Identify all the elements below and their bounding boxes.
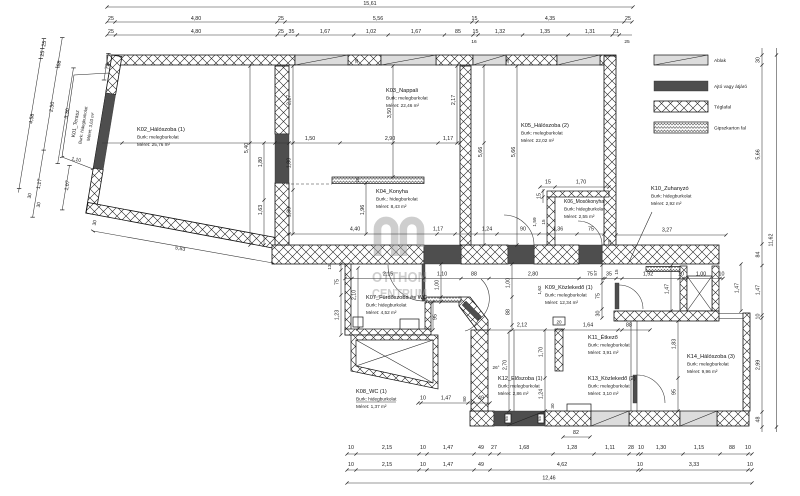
svg-text:25: 25 xyxy=(39,50,46,57)
svg-text:5,40: 5,40 xyxy=(244,143,250,153)
svg-text:1,50: 1,50 xyxy=(305,136,315,142)
svg-text:Burk: hidegburkolat: Burk: hidegburkolat xyxy=(651,194,692,199)
svg-text:Burk: hidegburkolat: Burk: hidegburkolat xyxy=(366,303,407,308)
svg-text:OTTHON: OTTHON xyxy=(372,270,427,286)
svg-text:K06_Mosókonyha: K06_Mosókonyha xyxy=(564,199,604,205)
svg-text:65: 65 xyxy=(537,416,542,421)
svg-text:1,59: 1,59 xyxy=(532,217,538,227)
svg-text:4,40: 4,40 xyxy=(350,227,360,233)
svg-text:75: 75 xyxy=(588,227,594,233)
svg-text:1,31: 1,31 xyxy=(585,29,595,35)
svg-text:1,47: 1,47 xyxy=(665,284,671,294)
svg-text:30: 30 xyxy=(550,403,555,409)
svg-text:21: 21 xyxy=(613,29,619,35)
svg-text:K08_WC (1): K08_WC (1) xyxy=(356,389,387,395)
svg-text:1,89: 1,89 xyxy=(287,207,293,217)
svg-text:K09_Közlekedő (1): K09_Közlekedő (1) xyxy=(545,285,593,291)
svg-text:1,00: 1,00 xyxy=(506,278,512,288)
svg-text:Méret: 9,96 m²: Méret: 9,96 m² xyxy=(687,369,718,374)
svg-text:25: 25 xyxy=(624,39,630,45)
svg-text:49: 49 xyxy=(478,396,484,402)
svg-text:35: 35 xyxy=(606,272,612,278)
svg-text:10: 10 xyxy=(348,462,354,468)
svg-text:4,35: 4,35 xyxy=(545,16,555,22)
svg-text:1,80: 1,80 xyxy=(287,158,293,168)
svg-text:25: 25 xyxy=(108,29,114,35)
svg-text:Méret: 2,86 m²: Méret: 2,86 m² xyxy=(498,391,529,396)
svg-text:1,80: 1,80 xyxy=(258,157,264,167)
svg-text:1,00: 1,00 xyxy=(696,272,706,278)
svg-text:2,15: 2,15 xyxy=(382,462,392,468)
svg-text:84: 84 xyxy=(756,252,762,258)
svg-text:1,47: 1,47 xyxy=(441,396,451,402)
svg-text:Burk: melegburkolat: Burk: melegburkolat xyxy=(545,293,587,298)
svg-text:15: 15 xyxy=(537,193,543,199)
svg-text:1,24: 1,24 xyxy=(482,227,492,233)
svg-text:K14_Hálószoba (3): K14_Hálószoba (3) xyxy=(687,354,735,360)
svg-text:2,15: 2,15 xyxy=(383,272,393,278)
svg-text:1,92: 1,92 xyxy=(643,272,653,278)
svg-text:75: 75 xyxy=(335,279,341,285)
svg-text:30: 30 xyxy=(756,57,762,63)
svg-text:1,02: 1,02 xyxy=(366,29,376,35)
svg-text:27: 27 xyxy=(491,445,497,451)
svg-text:K10_Zuhanyzó: K10_Zuhanyzó xyxy=(651,186,689,192)
svg-text:88: 88 xyxy=(56,60,63,67)
svg-text:Gipszkarton fal: Gipszkarton fal xyxy=(714,126,746,132)
svg-text:15: 15 xyxy=(541,219,546,225)
svg-text:20: 20 xyxy=(607,239,612,244)
svg-text:10: 10 xyxy=(348,445,354,451)
svg-text:65: 65 xyxy=(504,416,509,421)
svg-text:35: 35 xyxy=(289,29,295,35)
svg-text:88: 88 xyxy=(471,272,477,278)
svg-text:Méret: 22,02 m²: Méret: 22,02 m² xyxy=(521,138,555,143)
svg-text:25: 25 xyxy=(278,16,284,22)
svg-text:1,67: 1,67 xyxy=(320,29,330,35)
svg-text:15: 15 xyxy=(545,180,551,186)
svg-text:26°: 26° xyxy=(493,365,500,370)
svg-text:25: 25 xyxy=(278,29,284,35)
svg-text:Burk: melegburkolat: Burk: melegburkolat xyxy=(687,362,729,367)
svg-text:1,70: 1,70 xyxy=(539,347,545,357)
svg-text:30: 30 xyxy=(354,58,359,63)
svg-text:90: 90 xyxy=(520,227,526,233)
svg-text:57: 57 xyxy=(593,270,598,276)
svg-text:3,50: 3,50 xyxy=(387,108,393,118)
svg-text:1,17: 1,17 xyxy=(443,136,453,142)
svg-text:10: 10 xyxy=(420,462,426,468)
svg-text:1,17: 1,17 xyxy=(433,227,443,233)
svg-text:4,80: 4,80 xyxy=(191,16,201,22)
svg-text:Ajtó vagy átjáró: Ajtó vagy átjáró xyxy=(714,84,747,90)
svg-text:Méret: 2,55 m²: Méret: 2,55 m² xyxy=(564,214,595,219)
svg-text:88: 88 xyxy=(729,445,735,451)
svg-text:1,32: 1,32 xyxy=(495,29,505,35)
svg-text:3,27: 3,27 xyxy=(662,228,672,234)
svg-text:Méret: 3,91 m²: Méret: 3,91 m² xyxy=(588,350,619,355)
svg-text:1,35: 1,35 xyxy=(540,29,550,35)
svg-text:1,36: 1,36 xyxy=(553,227,563,233)
svg-text:15,61: 15,61 xyxy=(363,1,376,7)
svg-text:1,96: 1,96 xyxy=(360,205,366,215)
svg-text:3,33: 3,33 xyxy=(689,462,699,468)
svg-text:4,80: 4,80 xyxy=(191,29,201,35)
svg-text:10: 10 xyxy=(637,462,643,468)
svg-text:10: 10 xyxy=(756,314,762,320)
svg-text:K05_Hálószoba (2): K05_Hálószoba (2) xyxy=(521,123,569,129)
svg-text:2,10: 2,10 xyxy=(352,290,358,300)
svg-text:K07_Fürdőszoba és WC: K07_Fürdőszoba és WC xyxy=(366,295,427,301)
svg-text:25: 25 xyxy=(108,16,114,22)
svg-text:11,62: 11,62 xyxy=(769,234,775,247)
svg-text:Méret: 12,34 m²: Méret: 12,34 m² xyxy=(545,300,579,305)
svg-text:30: 30 xyxy=(505,58,510,63)
svg-text:30: 30 xyxy=(596,311,602,317)
svg-text:2,90: 2,90 xyxy=(385,136,395,142)
svg-text:5,66: 5,66 xyxy=(756,149,762,159)
svg-text:4,62: 4,62 xyxy=(557,462,567,468)
svg-text:48: 48 xyxy=(756,417,762,423)
svg-text:Burk: melegburkolat: Burk: melegburkolat xyxy=(498,384,540,389)
svg-text:1,63: 1,63 xyxy=(258,205,264,215)
svg-text:88: 88 xyxy=(626,323,632,329)
svg-text:5,66: 5,66 xyxy=(478,147,484,157)
svg-text:Méret: 2,92 m²: Méret: 2,92 m² xyxy=(651,201,682,206)
svg-text:Burk: hidegburkolat: Burk: hidegburkolat xyxy=(564,207,605,212)
svg-text:K13_Közlekedő (2): K13_Közlekedő (2) xyxy=(588,376,636,382)
svg-text:5,56: 5,56 xyxy=(373,16,383,22)
svg-text:2,99: 2,99 xyxy=(756,360,762,370)
svg-text:Burk: melegburkolat: Burk: melegburkolat xyxy=(521,131,563,136)
svg-text:Téglafal: Téglafal xyxy=(714,105,731,111)
svg-text:1,62: 1,62 xyxy=(537,285,542,294)
svg-text:12,46: 12,46 xyxy=(542,476,555,482)
svg-text:88: 88 xyxy=(506,309,512,315)
svg-text:1,24: 1,24 xyxy=(539,389,545,399)
svg-text:10: 10 xyxy=(745,445,751,451)
svg-text:20: 20 xyxy=(355,177,360,182)
svg-text:2,17: 2,17 xyxy=(287,95,293,105)
svg-text:85: 85 xyxy=(455,29,461,35)
svg-text:1,23: 1,23 xyxy=(335,310,341,320)
svg-text:25: 25 xyxy=(41,40,48,47)
svg-text:2,70: 2,70 xyxy=(503,360,509,370)
svg-text:95: 95 xyxy=(672,389,678,395)
svg-text:2,12: 2,12 xyxy=(517,323,527,329)
svg-text:1,70: 1,70 xyxy=(576,180,586,186)
svg-text:Méret: 22,46 m²: Méret: 22,46 m² xyxy=(386,103,420,108)
svg-text:K11_Étkező: K11_Étkező xyxy=(588,334,618,341)
svg-text:10: 10 xyxy=(747,462,753,468)
svg-text:1,64: 1,64 xyxy=(583,323,593,329)
svg-text:Méret: 8,43 m²: Méret: 8,43 m² xyxy=(376,204,407,209)
svg-text:K03_Nappali: K03_Nappali xyxy=(386,88,418,94)
svg-text:15: 15 xyxy=(614,269,619,275)
svg-text:95: 95 xyxy=(433,314,439,320)
svg-text:1,28: 1,28 xyxy=(567,445,577,451)
svg-text:15: 15 xyxy=(472,16,478,22)
svg-text:1,47: 1,47 xyxy=(443,445,453,451)
svg-text:1,67: 1,67 xyxy=(411,29,421,35)
svg-text:1,10: 1,10 xyxy=(437,272,447,278)
svg-text:1,83: 1,83 xyxy=(672,339,678,349)
svg-text:1,47: 1,47 xyxy=(443,462,453,468)
svg-text:1,68: 1,68 xyxy=(519,445,529,451)
svg-text:Burk: melegburkolat: Burk: melegburkolat xyxy=(137,135,179,140)
svg-text:1,00: 1,00 xyxy=(435,280,441,290)
svg-text:Méret: 4,52 m²: Méret: 4,52 m² xyxy=(366,310,397,315)
svg-text:80: 80 xyxy=(462,396,467,402)
svg-text:82: 82 xyxy=(573,430,579,436)
svg-text:K12_Előszoba (1): K12_Előszoba (1) xyxy=(498,376,543,382)
svg-text:10: 10 xyxy=(420,445,426,451)
svg-text:1,47: 1,47 xyxy=(735,283,741,293)
svg-text:49: 49 xyxy=(478,462,484,468)
svg-text:1,30: 1,30 xyxy=(656,445,666,451)
svg-text:K04_Konyha: K04_Konyha xyxy=(376,189,409,195)
svg-text:10: 10 xyxy=(638,445,644,451)
svg-text:2,80: 2,80 xyxy=(528,272,538,278)
svg-text:Burk.: hidegburkolat: Burk.: hidegburkolat xyxy=(376,197,418,202)
svg-text:16: 16 xyxy=(471,39,477,45)
svg-text:20: 20 xyxy=(556,320,562,325)
svg-text:1,11: 1,11 xyxy=(605,445,615,451)
svg-text:10: 10 xyxy=(719,272,725,278)
svg-text:13: 13 xyxy=(327,264,332,270)
svg-text:25: 25 xyxy=(625,16,631,22)
svg-text:73: 73 xyxy=(104,63,111,70)
svg-text:1,15: 1,15 xyxy=(694,445,704,451)
svg-text:Méret: 3,10 m²: Méret: 3,10 m² xyxy=(588,391,619,396)
svg-text:49: 49 xyxy=(478,445,484,451)
svg-text:Burk: melegburkolat: Burk: melegburkolat xyxy=(588,384,630,389)
svg-text:28: 28 xyxy=(628,445,634,451)
svg-text:10: 10 xyxy=(420,396,426,402)
svg-text:5,66: 5,66 xyxy=(511,147,517,157)
svg-text:2,17: 2,17 xyxy=(451,95,457,105)
svg-text:Burk: melegburkolat: Burk: melegburkolat xyxy=(386,96,428,101)
svg-text:Burk: melegburkolat: Burk: melegburkolat xyxy=(588,343,630,348)
svg-text:75: 75 xyxy=(596,293,602,299)
svg-text:15: 15 xyxy=(473,29,479,35)
svg-text:2,15: 2,15 xyxy=(382,445,392,451)
svg-text:1,47: 1,47 xyxy=(756,285,762,295)
svg-text:Ablak: Ablak xyxy=(714,58,727,64)
svg-text:10: 10 xyxy=(678,272,684,278)
svg-text:Burk: hidegburkolat: Burk: hidegburkolat xyxy=(356,397,397,402)
svg-text:K02_Hálószoba (1): K02_Hálószoba (1) xyxy=(137,127,185,133)
svg-text:Méret: 1,37 m²: Méret: 1,37 m² xyxy=(356,404,387,409)
